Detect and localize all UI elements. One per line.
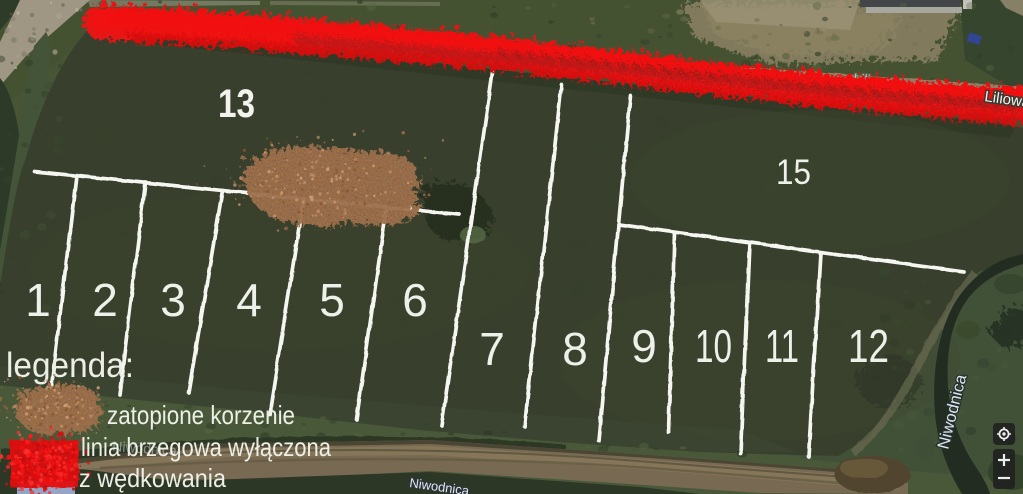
svg-text:11: 11 <box>765 320 799 372</box>
svg-text:2: 2 <box>92 274 118 326</box>
svg-text:13: 13 <box>218 82 255 126</box>
svg-text:1: 1 <box>25 274 51 326</box>
svg-text:9: 9 <box>631 320 657 372</box>
svg-text:8: 8 <box>562 323 588 375</box>
svg-text:z wędkowania: z wędkowania <box>79 463 226 493</box>
svg-text:linia brzegowa wyłączona: linia brzegowa wyłączona <box>81 432 331 462</box>
svg-text:7: 7 <box>479 323 505 375</box>
svg-text:3: 3 <box>160 274 186 326</box>
svg-text:zatopione korzenie: zatopione korzenie <box>107 400 295 430</box>
svg-text:6: 6 <box>402 274 428 326</box>
svg-text:10: 10 <box>695 320 732 372</box>
svg-text:15: 15 <box>776 153 811 192</box>
svg-text:5: 5 <box>319 274 345 326</box>
svg-text:legenda:: legenda: <box>6 346 134 385</box>
svg-text:4: 4 <box>236 274 262 326</box>
svg-text:12: 12 <box>848 320 889 372</box>
